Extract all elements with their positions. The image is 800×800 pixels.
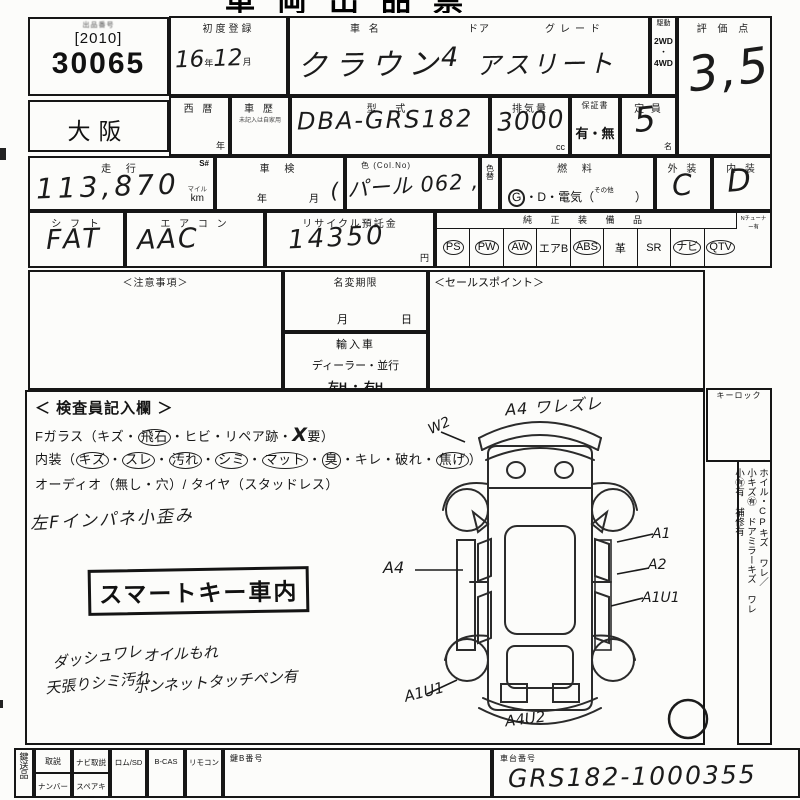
shaken-month-label: 月: [309, 190, 319, 205]
rom-cell: ロム/SD: [110, 748, 147, 798]
navi-manual-label: ナビ取説: [74, 757, 108, 768]
interior-value: D: [726, 162, 752, 200]
import-cell: 輸入車 ディーラー・並行 左H ・ 右H: [283, 332, 428, 390]
grade-value: アスリート: [476, 44, 617, 82]
fuel-mid: ・D・電気（: [525, 190, 594, 204]
drive-dot: ・: [652, 46, 675, 58]
door-value: 4: [441, 42, 458, 73]
naiso-token-マット: マット: [262, 452, 309, 469]
naiso-pre: 内装（: [35, 452, 76, 467]
name-change-cell: 名変期限 月 日: [283, 270, 428, 332]
seireki-cell: 西 暦 年: [169, 96, 230, 156]
car-name-label: 車 名: [350, 18, 382, 35]
naiso-tokens: キズ・スレ・汚れ・シミ・マット・臭・キレ・破れ・焦げ: [76, 452, 469, 467]
mileage-unit-mile: マイル: [188, 183, 208, 193]
lot-box: 出品番号 [2010] 30065: [28, 17, 169, 96]
number-cell: ナンバー: [34, 772, 72, 798]
manual-cell: 取説: [34, 748, 72, 774]
displacement-value: 3000: [496, 104, 565, 136]
fuel-close: ）: [635, 190, 647, 204]
navi-manual-cell: ナビ取説: [72, 748, 110, 774]
key-items-side-cell: 鍵送品: [14, 748, 34, 798]
equipment-item-SR: SR: [638, 229, 671, 266]
sales-point-label: ＜セールスポイント＞: [430, 272, 703, 290]
color-change-label: 色替: [485, 164, 496, 180]
equipment-items-row: PSPWAWエアBABS革SRナビQTV: [437, 229, 737, 266]
mileage-unit: マイル km: [188, 183, 208, 204]
smart-key-stamp: スマートキー車内: [88, 566, 310, 616]
bcas-cell: B-CAS: [147, 748, 185, 798]
mileage-value: 113,870: [35, 168, 180, 206]
number-label: ナンバー: [36, 781, 70, 792]
fglass-post: 要）: [307, 429, 334, 444]
equipment-item-QTV: QTV: [705, 229, 737, 266]
dmg-right-rear: A1U1: [642, 590, 680, 606]
shaken-cell: 車 検 年 月: [215, 156, 345, 211]
wheel-stamp-line3: 小㊒有 補修有: [732, 468, 744, 737]
prefecture-value: 大阪: [30, 112, 167, 146]
fuel-cell: 燃 料 G・D・電気（その他 ）: [500, 156, 655, 211]
prefecture-box: 大阪: [28, 100, 169, 152]
sales-point-cell: ＜セールスポイント＞: [428, 270, 705, 390]
shift-value: FAT: [45, 223, 102, 256]
naiso-token-臭: 臭: [322, 452, 342, 469]
notes-cell: ＜注意事項＞: [28, 270, 283, 390]
spare-key-cell: スペアキー: [72, 772, 110, 798]
key-no-cell: 鍵B番号: [223, 748, 492, 798]
displacement-unit: cc: [556, 142, 565, 152]
equipment-item-ナビ: ナビ: [671, 229, 704, 266]
round-stamp: [669, 700, 707, 738]
seireki-label: 西 暦: [171, 98, 228, 115]
chassis-value: GRS182-1000355: [508, 760, 757, 793]
clipped-title: 車両出品票: [225, 0, 585, 13]
equipment-item-ABS: ABS: [571, 229, 604, 266]
color-change-cell: 色替: [480, 156, 500, 211]
dmg-left-side: A4: [383, 558, 404, 577]
seireki-unit: 年: [216, 139, 225, 152]
drive-4wd: 4WD: [652, 58, 675, 68]
key-no-label: 鍵B番号: [225, 750, 490, 764]
wheel-stamp-line1: ホイル・CPキズ ワレ／: [756, 468, 768, 737]
fuel-label: 燃 料: [502, 158, 653, 175]
key-items-side-label: 鍵送品: [18, 752, 31, 779]
shareki-label: 車 歴: [232, 98, 288, 115]
import-dealer: ディーラー・並行: [285, 357, 426, 373]
mileage-unit-km: km: [188, 193, 208, 204]
mileage-s-label: S#: [199, 159, 209, 168]
aircon-value: AAC: [136, 223, 199, 256]
equipment-item-AW: AW: [504, 229, 537, 266]
fglass-pre: Fガラス（キズ・: [35, 429, 138, 444]
capacity-unit: 名: [664, 141, 672, 152]
bcas-label: B-CAS: [149, 757, 183, 766]
smart-key-stamp-text: スマートキー車内: [99, 578, 299, 607]
warranty-cell: 保証書 有・無: [570, 96, 620, 156]
scan-speck: [0, 148, 6, 160]
clipped-title-text: 車両出品票: [225, 0, 485, 13]
first-reg-month-unit: 月: [243, 58, 252, 68]
lot-number: 30065: [30, 47, 167, 80]
fuel-options: G・D・電気（その他 ）: [502, 184, 653, 207]
shaken-year-label: 年: [257, 190, 267, 205]
name-change-month: 月: [337, 311, 348, 327]
score-value: 3,5: [685, 37, 774, 104]
recycle-value: 14350: [287, 220, 386, 255]
fglass-circled: 飛石: [138, 429, 171, 446]
drive-cell: 駆動 2WD ・ 4WD: [650, 16, 677, 96]
equipment-cell: 純 正 装 備 品 Nチューナー有 PSPWAWエアBABS革SRナビQTV: [435, 211, 772, 268]
shareki-note: 未記入は自家用: [232, 115, 288, 124]
inspector-heading: ＜ 検査員記入欄 ＞: [35, 397, 173, 418]
inspector-audio-line: オーディオ（無し・穴）/ タイヤ（スタッドレス）: [35, 474, 339, 493]
inspector-fglass-line: Fガラス（キズ・飛石・ヒビ・リペア跡・X要）: [35, 424, 334, 446]
import-label: 輸入車: [285, 336, 426, 352]
shareki-cell: 車 歴 未記入は自家用: [230, 96, 290, 156]
naiso-post: ）: [469, 452, 483, 467]
name-change-label: 名変期限: [285, 272, 426, 289]
exterior-value: C: [671, 167, 694, 203]
naiso-token-キズ: キズ: [76, 452, 109, 469]
note-oil: オイルもれ: [143, 641, 219, 666]
drive-label: 駆動: [652, 18, 675, 28]
naiso-token-破れ: 破れ: [395, 452, 422, 467]
spare-key-label: スペアキー: [74, 781, 108, 800]
naiso-token-シミ: シミ: [215, 452, 248, 469]
equipment-item-PS: PS: [437, 229, 470, 266]
equipment-item-エアB: エアB: [537, 229, 570, 266]
auction-sheet: 車両出品票 出品番号 [2010] 30065 初度登録 16年12月 車 名 …: [0, 0, 800, 800]
equipment-item-PW: PW: [470, 229, 503, 266]
naiso-token-スレ: スレ: [122, 452, 155, 469]
shaken-label: 車 検: [217, 158, 343, 175]
wheel-stamp-line2: 小キズ㊒ ドアミラーキズ ワレ: [744, 468, 756, 737]
fglass-mid: ・ヒビ・リペア跡・: [171, 429, 293, 444]
naiso-token-汚れ: 汚れ: [169, 452, 202, 469]
first-registration-value: 16年12月: [175, 45, 252, 74]
warranty-options: 有・無: [572, 123, 618, 142]
keylock-label: キーロック: [708, 390, 770, 401]
fuel-gasoline: G: [507, 188, 526, 208]
remote-label: リモコン: [187, 757, 221, 768]
drive-2wd: 2WD: [652, 36, 675, 46]
grade-label: グレード: [545, 18, 605, 35]
fglass-hand-x: X: [292, 424, 307, 446]
naiso-token-焦げ: 焦げ: [436, 452, 469, 469]
name-change-day: 日: [401, 311, 412, 327]
dmg-right-door-1: A1: [652, 526, 670, 542]
keylock-cell: キーロック: [706, 388, 772, 462]
first-reg-year: 16: [175, 46, 205, 73]
warranty-label: 保証書: [572, 98, 618, 111]
equipment-tuner-label: Nチューナー有: [739, 214, 769, 230]
capacity-value: 5: [632, 99, 658, 141]
lot-bracket: [2010]: [30, 30, 167, 47]
first-registration-label: 初度登録: [171, 18, 286, 35]
manual-label: 取説: [36, 756, 70, 767]
equipment-item-革: 革: [604, 229, 637, 266]
recycle-unit: 円: [420, 251, 429, 264]
inspector-naiso-line: 内装（キズ・スレ・汚れ・シミ・マット・臭・キレ・破れ・焦げ）: [35, 449, 482, 469]
naiso-token-キレ: キレ: [355, 452, 382, 467]
equipment-label: 純 正 装 備 品: [437, 213, 736, 226]
door-label: ドア: [468, 18, 490, 35]
first-reg-month: 12: [213, 45, 243, 72]
notes-label: ＜注意事項＞: [30, 272, 281, 289]
car-name-value: クラウン: [297, 39, 446, 86]
wheel-stamp-column: ホイル・CPキズ ワレ／ 小キズ㊒ ドアミラーキズ ワレ 小㊒有 補修有: [737, 462, 772, 745]
katashiki-value: DBA-GRS182: [297, 104, 474, 135]
score-label: 評 価 点: [679, 18, 770, 35]
dmg-right-door-2: A2: [648, 557, 666, 573]
remote-cell: リモコン: [185, 748, 223, 798]
lot-label: 出品番号: [30, 20, 167, 30]
fuel-other: その他: [594, 187, 614, 194]
scan-speck: [0, 700, 3, 708]
rom-label: ロム/SD: [112, 757, 145, 768]
